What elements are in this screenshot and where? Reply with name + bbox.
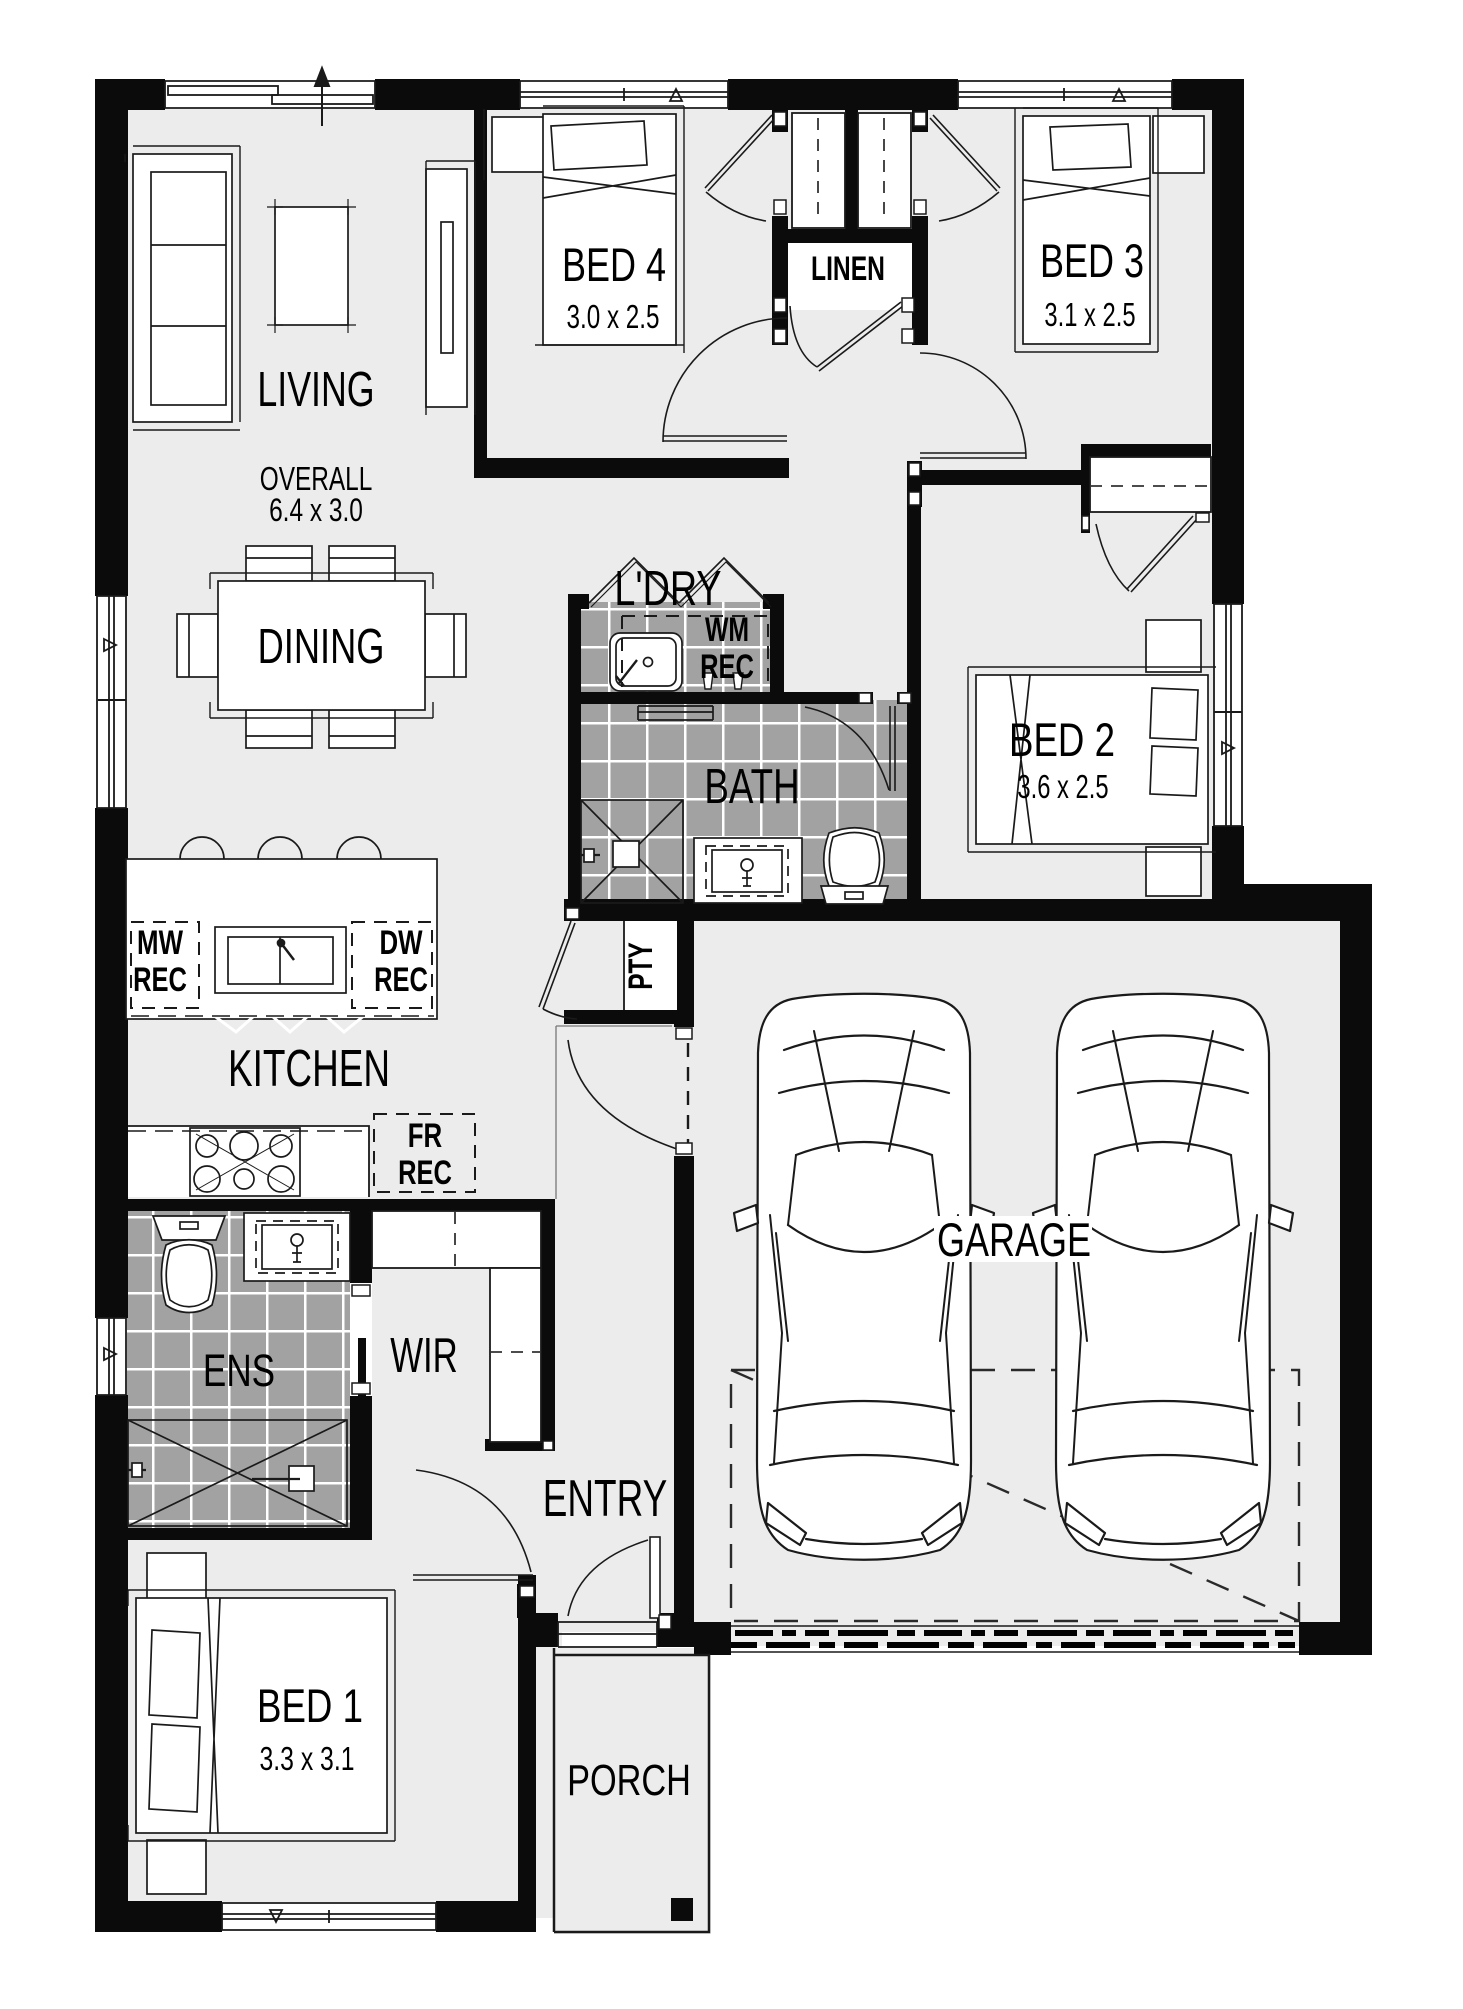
- svg-text:BATH: BATH: [704, 760, 799, 814]
- svg-text:WM: WM: [705, 611, 749, 649]
- svg-text:ENS: ENS: [203, 1345, 275, 1396]
- svg-text:REC: REC: [398, 1155, 452, 1192]
- svg-text:WIR: WIR: [390, 1329, 458, 1383]
- svg-text:BED 1: BED 1: [257, 1680, 363, 1732]
- svg-text:BED 2: BED 2: [1009, 714, 1115, 766]
- svg-text:PORCH: PORCH: [567, 1756, 691, 1805]
- svg-text:FR: FR: [408, 1118, 443, 1155]
- svg-text:LINEN: LINEN: [811, 250, 885, 288]
- svg-text:3.0 x 2.5: 3.0 x 2.5: [567, 300, 660, 336]
- svg-text:DINING: DINING: [258, 620, 385, 675]
- svg-text:3.6 x 2.5: 3.6 x 2.5: [1017, 769, 1108, 806]
- svg-text:PTY: PTY: [622, 942, 660, 990]
- svg-text:REC: REC: [700, 649, 754, 686]
- svg-text:DW: DW: [379, 925, 422, 962]
- svg-text:3.3 x 3.1: 3.3 x 3.1: [260, 1742, 355, 1778]
- svg-text:3.1 x 2.5: 3.1 x 2.5: [1044, 297, 1135, 334]
- svg-text:KITCHEN: KITCHEN: [228, 1039, 390, 1098]
- svg-text:MW: MW: [137, 925, 183, 962]
- svg-text:GARAGE: GARAGE: [937, 1213, 1091, 1266]
- svg-text:REC: REC: [374, 962, 428, 999]
- svg-text:REC: REC: [133, 962, 187, 999]
- svg-text:BED 3: BED 3: [1040, 234, 1144, 287]
- svg-text:BED 4: BED 4: [562, 238, 666, 291]
- svg-text:ENTRY: ENTRY: [543, 1469, 667, 1528]
- svg-text:6.4 x 3.0: 6.4 x 3.0: [269, 493, 363, 529]
- svg-text:L'DRY: L'DRY: [614, 561, 721, 616]
- svg-text:LIVING: LIVING: [257, 363, 374, 418]
